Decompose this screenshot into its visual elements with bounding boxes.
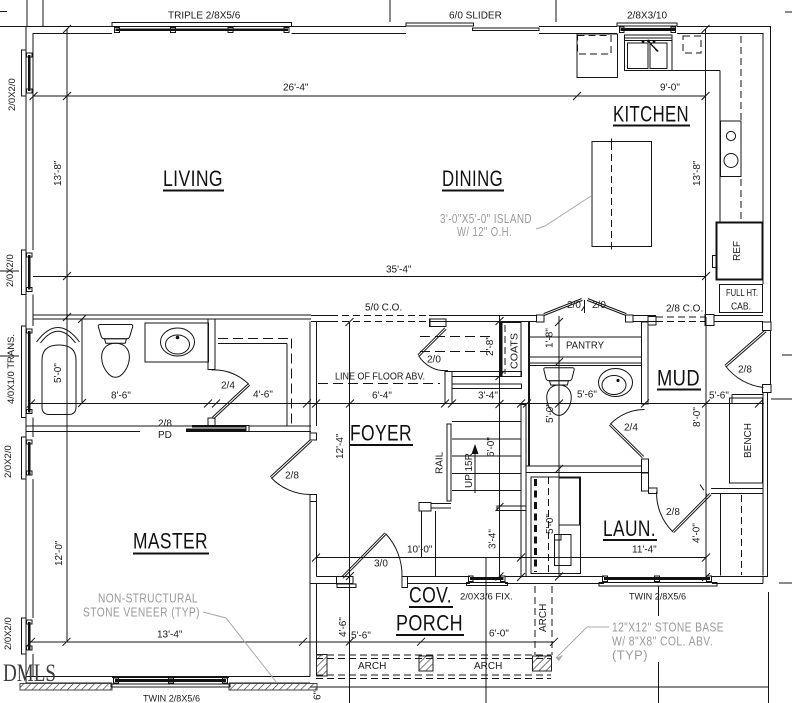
svg-text:TWIN 2/8X5/6: TWIN 2/8X5/6 (143, 694, 200, 703)
svg-text:13'-8": 13'-8" (53, 160, 64, 186)
svg-text:2/0X2/0: 2/0X2/0 (3, 617, 14, 650)
svg-text:LAUN.: LAUN. (603, 516, 656, 541)
svg-text:26'-4": 26'-4" (283, 83, 309, 94)
svg-text:5'-6": 5'-6" (709, 391, 729, 402)
svg-text:35'-4": 35'-4" (386, 265, 412, 276)
svg-text:2/4: 2/4 (624, 423, 638, 434)
svg-text:3'-0"X5'-0" ISLAND: 3'-0"X5'-0" ISLAND (440, 212, 532, 226)
svg-text:10'-0": 10'-0" (407, 545, 433, 556)
svg-text:MASTER: MASTER (133, 529, 208, 554)
svg-text:PORCH: PORCH (396, 611, 463, 636)
svg-text:W/ 12" O.H.: W/ 12" O.H. (457, 225, 512, 239)
svg-text:FULL HT.: FULL HT. (726, 288, 758, 299)
svg-text:2'-8": 2'-8" (485, 336, 496, 356)
svg-text:6'-4": 6'-4" (372, 391, 392, 402)
svg-text:TRIPLE 2/8X5/6: TRIPLE 2/8X5/6 (168, 11, 241, 22)
svg-text:5'-0": 5'-0" (545, 403, 556, 423)
svg-text:RAIL: RAIL (435, 451, 446, 474)
svg-text:UP 15R: UP 15R (464, 453, 475, 488)
svg-text:LIVING: LIVING (163, 166, 223, 191)
svg-text:13'-4": 13'-4" (157, 630, 183, 641)
svg-text:3'-4": 3'-4" (488, 529, 499, 549)
svg-text:2/8: 2/8 (738, 365, 752, 376)
svg-text:12"X12" STONE BASE: 12"X12" STONE BASE (612, 621, 724, 635)
svg-text:DMLS: DMLS (3, 660, 56, 687)
svg-text:9'-0": 9'-0" (660, 83, 680, 94)
svg-text:2/8: 2/8 (158, 419, 172, 430)
svg-text:2/0X3/6 FIX.: 2/0X3/6 FIX. (460, 592, 513, 603)
svg-text:CAB.: CAB. (731, 302, 751, 313)
svg-text:2/8 C.O.: 2/8 C.O. (666, 304, 703, 315)
svg-text:6/0 SLIDER: 6/0 SLIDER (449, 11, 502, 22)
svg-text:ARCH: ARCH (474, 661, 502, 672)
svg-text:5'-0": 5'-0" (53, 363, 64, 383)
svg-text:(TYP): (TYP) (612, 649, 648, 663)
svg-text:2/0: 2/0 (427, 355, 441, 366)
svg-text:KITCHEN: KITCHEN (613, 102, 689, 127)
svg-text:COV.: COV. (409, 583, 452, 608)
svg-text:2/8X3/10: 2/8X3/10 (627, 11, 667, 22)
svg-text:COATS: COATS (510, 333, 521, 369)
svg-text:PD: PD (158, 430, 172, 441)
svg-text:5'-6": 5'-6" (351, 631, 371, 642)
svg-text:4'-6": 4'-6" (338, 617, 349, 637)
svg-text:REF: REF (732, 241, 743, 261)
svg-text:8'-6": 8'-6" (111, 391, 131, 402)
svg-text:FOYER: FOYER (350, 421, 412, 446)
svg-text:6": 6" (313, 690, 324, 700)
svg-text:2/0X2/0: 2/0X2/0 (3, 445, 14, 478)
svg-text:TWIN 2/8X5/6: TWIN 2/8X5/6 (629, 592, 686, 603)
svg-text:2/0: 2/0 (567, 300, 581, 311)
svg-text:DINING: DINING (442, 166, 503, 191)
svg-text:6'-0": 6'-0" (486, 437, 497, 457)
svg-text:11'-4": 11'-4" (632, 545, 657, 556)
svg-text:2/8: 2/8 (666, 507, 680, 518)
svg-text:3'-4": 3'-4" (478, 391, 498, 402)
svg-text:NON-STRUCTURAL: NON-STRUCTURAL (98, 592, 198, 606)
svg-text:8'-0": 8'-0" (692, 407, 703, 427)
svg-text:5'-6": 5'-6" (577, 390, 597, 401)
svg-text:4'-6": 4'-6" (253, 390, 273, 401)
svg-text:12'-0": 12'-0" (54, 540, 65, 566)
svg-text:2/0X2/0: 2/0X2/0 (5, 254, 16, 287)
svg-text:BENCH: BENCH (743, 423, 754, 458)
svg-text:6'-0": 6'-0" (489, 629, 509, 640)
svg-text:W/ 8"X8" COL. ABV.: W/ 8"X8" COL. ABV. (612, 635, 713, 649)
svg-text:1'-8": 1'-8" (545, 328, 556, 348)
svg-text:2/8: 2/8 (285, 471, 299, 482)
svg-text:5/0 C.O.: 5/0 C.O. (365, 303, 402, 314)
svg-text:4/0X1/0 TRANS.: 4/0X1/0 TRANS. (6, 334, 17, 404)
svg-text:ARCH: ARCH (538, 604, 549, 632)
svg-text:12'-4": 12'-4" (335, 433, 346, 459)
svg-text:13'-8": 13'-8" (692, 160, 703, 186)
svg-text:2/4: 2/4 (221, 381, 235, 392)
svg-text:PANTRY: PANTRY (566, 341, 604, 352)
svg-text:2/0: 2/0 (592, 300, 606, 311)
svg-text:2/0X2/0: 2/0X2/0 (7, 78, 18, 111)
svg-text:5'-0": 5'-0" (545, 514, 556, 534)
svg-text:LINE OF FLOOR ABV.: LINE OF FLOOR ABV. (335, 372, 425, 383)
svg-text:3/0: 3/0 (374, 559, 388, 570)
svg-text:STONE VENEER (TYP): STONE VENEER (TYP) (83, 606, 200, 620)
svg-text:4'-0": 4'-0" (692, 523, 703, 543)
svg-text:MUD: MUD (657, 366, 700, 391)
svg-text:ARCH: ARCH (358, 661, 386, 672)
